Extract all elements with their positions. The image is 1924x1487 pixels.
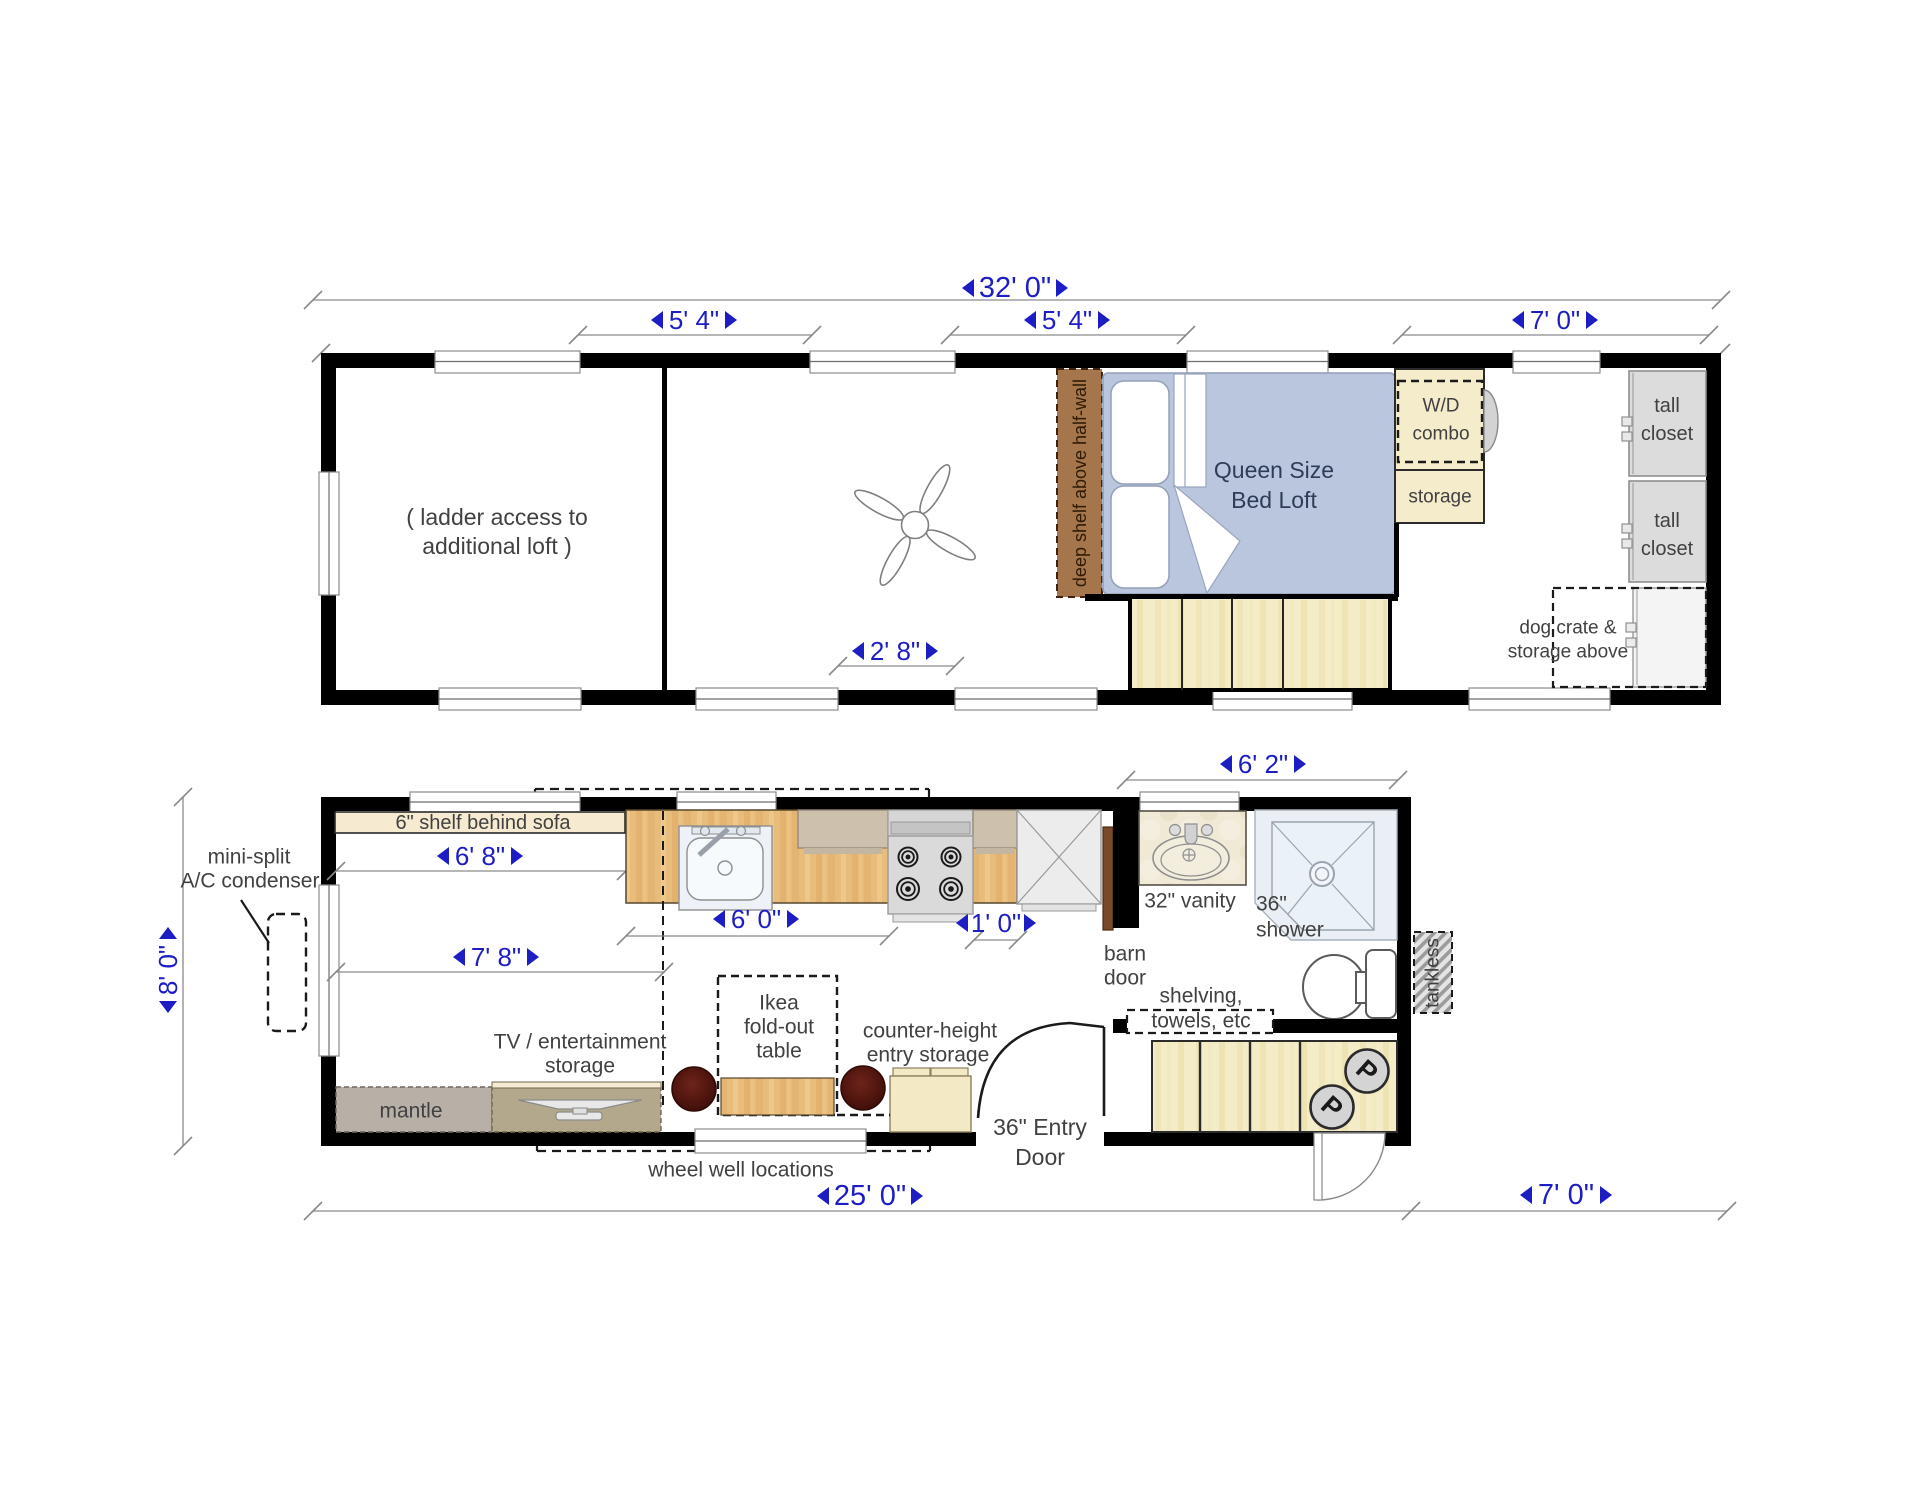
svg-text:counter-height: counter-height [863, 1020, 997, 1043]
svg-text:Ikea: Ikea [759, 992, 799, 1015]
svg-text:tall: tall [1654, 395, 1680, 417]
svg-text:6" shelf behind sofa: 6" shelf behind sofa [396, 812, 572, 834]
svg-text:7' 0": 7' 0" [1538, 1179, 1594, 1211]
svg-text:mantle: mantle [379, 1100, 442, 1123]
svg-text:storage: storage [545, 1055, 615, 1078]
svg-text:6' 0": 6' 0" [731, 904, 781, 934]
svg-text:36" Entry: 36" Entry [993, 1114, 1087, 1140]
svg-text:storage: storage [1408, 487, 1471, 508]
svg-text:36": 36" [1256, 893, 1287, 916]
svg-text:closet: closet [1641, 538, 1694, 560]
svg-text:deep shelf above half-wall: deep shelf above half-wall [1070, 379, 1090, 587]
svg-text:Queen Size: Queen Size [1214, 457, 1334, 483]
svg-text:wheel well locations: wheel well locations [647, 1159, 834, 1182]
svg-text:tankless: tankless [1423, 938, 1444, 1008]
svg-text:shower: shower [1256, 919, 1324, 942]
svg-text:Door: Door [1015, 1144, 1065, 1170]
svg-text:8' 0": 8' 0" [153, 945, 183, 995]
svg-text:fold-out: fold-out [744, 1016, 814, 1039]
svg-text:32' 0": 32' 0" [979, 272, 1051, 304]
svg-text:tall: tall [1654, 510, 1680, 532]
svg-text:additional loft ): additional loft ) [422, 533, 572, 559]
svg-text:( ladder access to: ( ladder access to [406, 504, 588, 530]
svg-text:2' 8": 2' 8" [870, 636, 920, 666]
svg-text:entry storage: entry storage [867, 1044, 990, 1067]
svg-text:TV / entertainment: TV / entertainment [494, 1031, 667, 1054]
svg-text:1' 0": 1' 0" [971, 908, 1021, 938]
svg-text:7' 8": 7' 8" [471, 942, 521, 972]
svg-text:dog crate &: dog crate & [1519, 618, 1616, 639]
svg-text:mini-split: mini-split [208, 846, 291, 869]
svg-text:A/C condenser: A/C condenser [181, 870, 320, 893]
svg-text:7' 0": 7' 0" [1530, 305, 1580, 335]
svg-text:Bed Loft: Bed Loft [1231, 487, 1317, 513]
svg-text:barn: barn [1104, 943, 1146, 966]
svg-text:storage above: storage above [1508, 642, 1628, 663]
svg-text:6' 8": 6' 8" [455, 841, 505, 871]
svg-text:combo: combo [1412, 424, 1469, 445]
svg-text:25' 0": 25' 0" [834, 1180, 906, 1212]
svg-text:door: door [1104, 967, 1146, 990]
svg-text:5' 4": 5' 4" [1042, 305, 1092, 335]
svg-text:towels, etc: towels, etc [1151, 1010, 1250, 1033]
svg-text:5' 4": 5' 4" [669, 305, 719, 335]
svg-text:6' 2": 6' 2" [1238, 749, 1288, 779]
svg-text:32" vanity: 32" vanity [1144, 890, 1236, 913]
svg-text:table: table [756, 1040, 802, 1063]
svg-text:shelving,: shelving, [1160, 985, 1243, 1008]
svg-text:closet: closet [1641, 423, 1694, 445]
svg-text:W/D: W/D [1423, 396, 1460, 417]
